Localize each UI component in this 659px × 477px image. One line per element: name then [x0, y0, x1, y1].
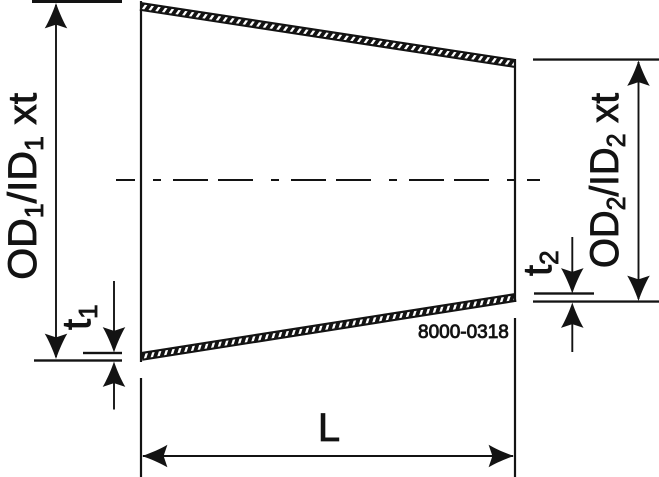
svg-text:8000-0318: 8000-0318: [418, 322, 509, 343]
svg-text:OD1/ID1 xt: OD1/ID1 xt: [1, 93, 49, 280]
svg-text:L: L: [318, 406, 340, 450]
svg-text:OD2/ID2 xt: OD2/ID2 xt: [583, 93, 631, 268]
